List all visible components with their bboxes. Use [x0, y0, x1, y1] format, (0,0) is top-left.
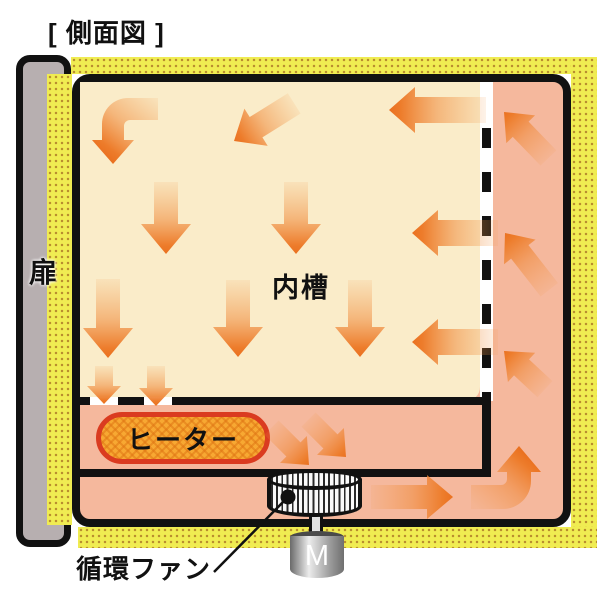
inner-chamber	[80, 82, 480, 401]
insulation-right	[571, 57, 597, 548]
insulation-top	[71, 57, 597, 74]
inner-chamber-label: 内槽	[272, 266, 330, 305]
circulation-fan-top	[267, 469, 362, 490]
perforated-divider	[480, 82, 493, 401]
door-label: 扉	[29, 251, 57, 291]
heater-label: ヒーター	[127, 420, 239, 457]
inner-chamber-floor-segment	[118, 397, 144, 405]
duct-partition	[482, 393, 491, 477]
motor-label: M	[290, 540, 344, 573]
fan-label: 循環ファン	[76, 549, 211, 586]
page-title: [ 側面図 ]	[48, 13, 165, 50]
insulation-left	[47, 74, 72, 525]
heater: ヒーター	[96, 412, 270, 464]
inner-chamber-floor-segment	[172, 397, 491, 405]
outlet-gap	[144, 397, 172, 405]
inner-chamber-floor-segment	[76, 397, 90, 405]
outlet-gap	[90, 397, 118, 405]
diagram-canvas: [ 側面図 ] ヒーター 内槽 扉 M	[0, 0, 600, 600]
